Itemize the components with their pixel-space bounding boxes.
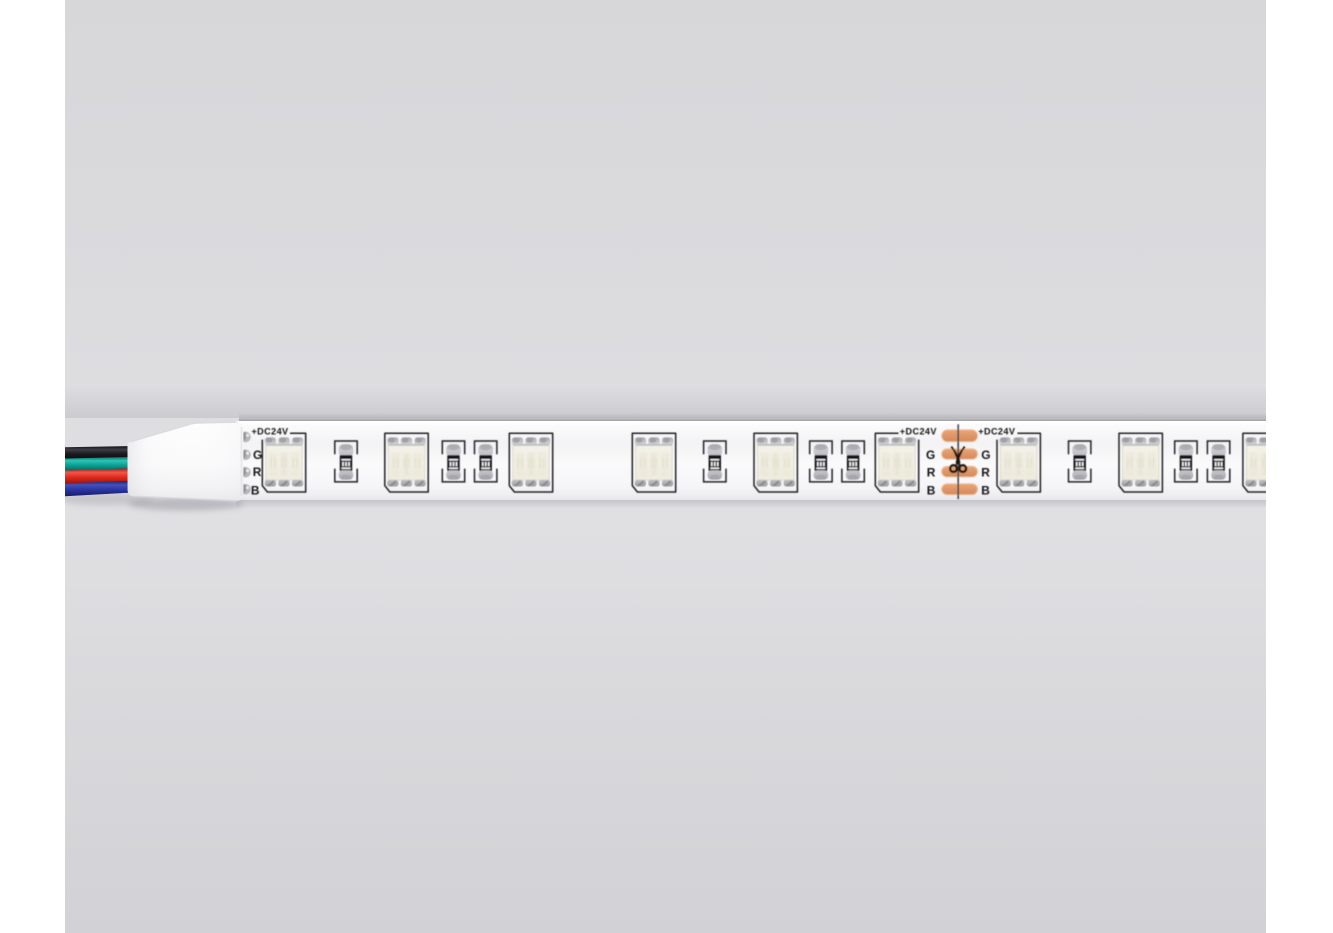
- svg-text:B: B: [251, 483, 260, 497]
- svg-text:+DC24V: +DC24V: [978, 426, 1015, 436]
- svg-text:G: G: [926, 448, 935, 462]
- svg-text:G: G: [981, 448, 990, 462]
- svg-text:+DC24V: +DC24V: [251, 426, 288, 436]
- svg-text:+DC24V: +DC24V: [900, 426, 937, 436]
- svg-text:G: G: [253, 448, 262, 462]
- svg-text:R: R: [927, 465, 936, 479]
- svg-text:R: R: [253, 465, 262, 479]
- svg-text:R: R: [981, 465, 990, 479]
- svg-text:B: B: [981, 483, 990, 497]
- svg-text:B: B: [927, 483, 936, 497]
